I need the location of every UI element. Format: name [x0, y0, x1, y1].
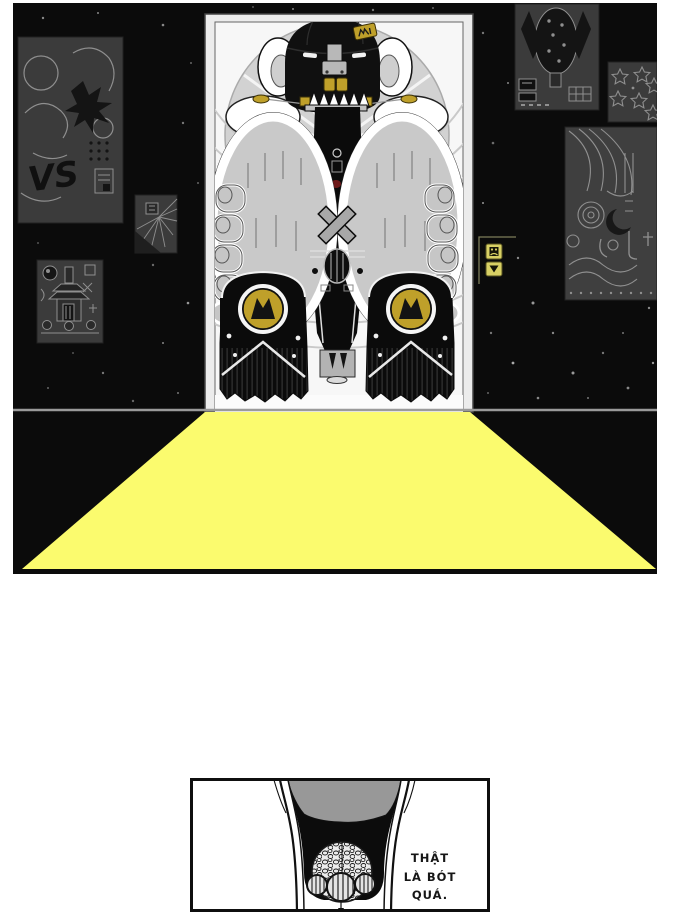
star-poster	[608, 62, 657, 122]
comic-page: VS	[0, 0, 676, 912]
call-button-down	[486, 262, 502, 276]
sneaker-left	[220, 272, 308, 402]
call-button-top	[486, 244, 502, 259]
caption-line-1: THẬT	[411, 850, 449, 865]
pagoda-poster	[37, 260, 103, 343]
vs-poster: VS	[18, 37, 123, 223]
swirl-poster	[565, 127, 657, 300]
balloon-poster	[515, 4, 599, 110]
sunburst-poster	[135, 195, 177, 253]
sneaker-right	[366, 272, 454, 402]
panel-1: VS	[13, 3, 657, 574]
vs-poster-label: VS	[26, 154, 82, 201]
panel-2: THẬT LÀ BÓT QUÁ.	[190, 778, 490, 912]
caption-line-3: QUÁ.	[412, 887, 448, 902]
caption-line-2: LÀ BÓT	[404, 869, 457, 884]
